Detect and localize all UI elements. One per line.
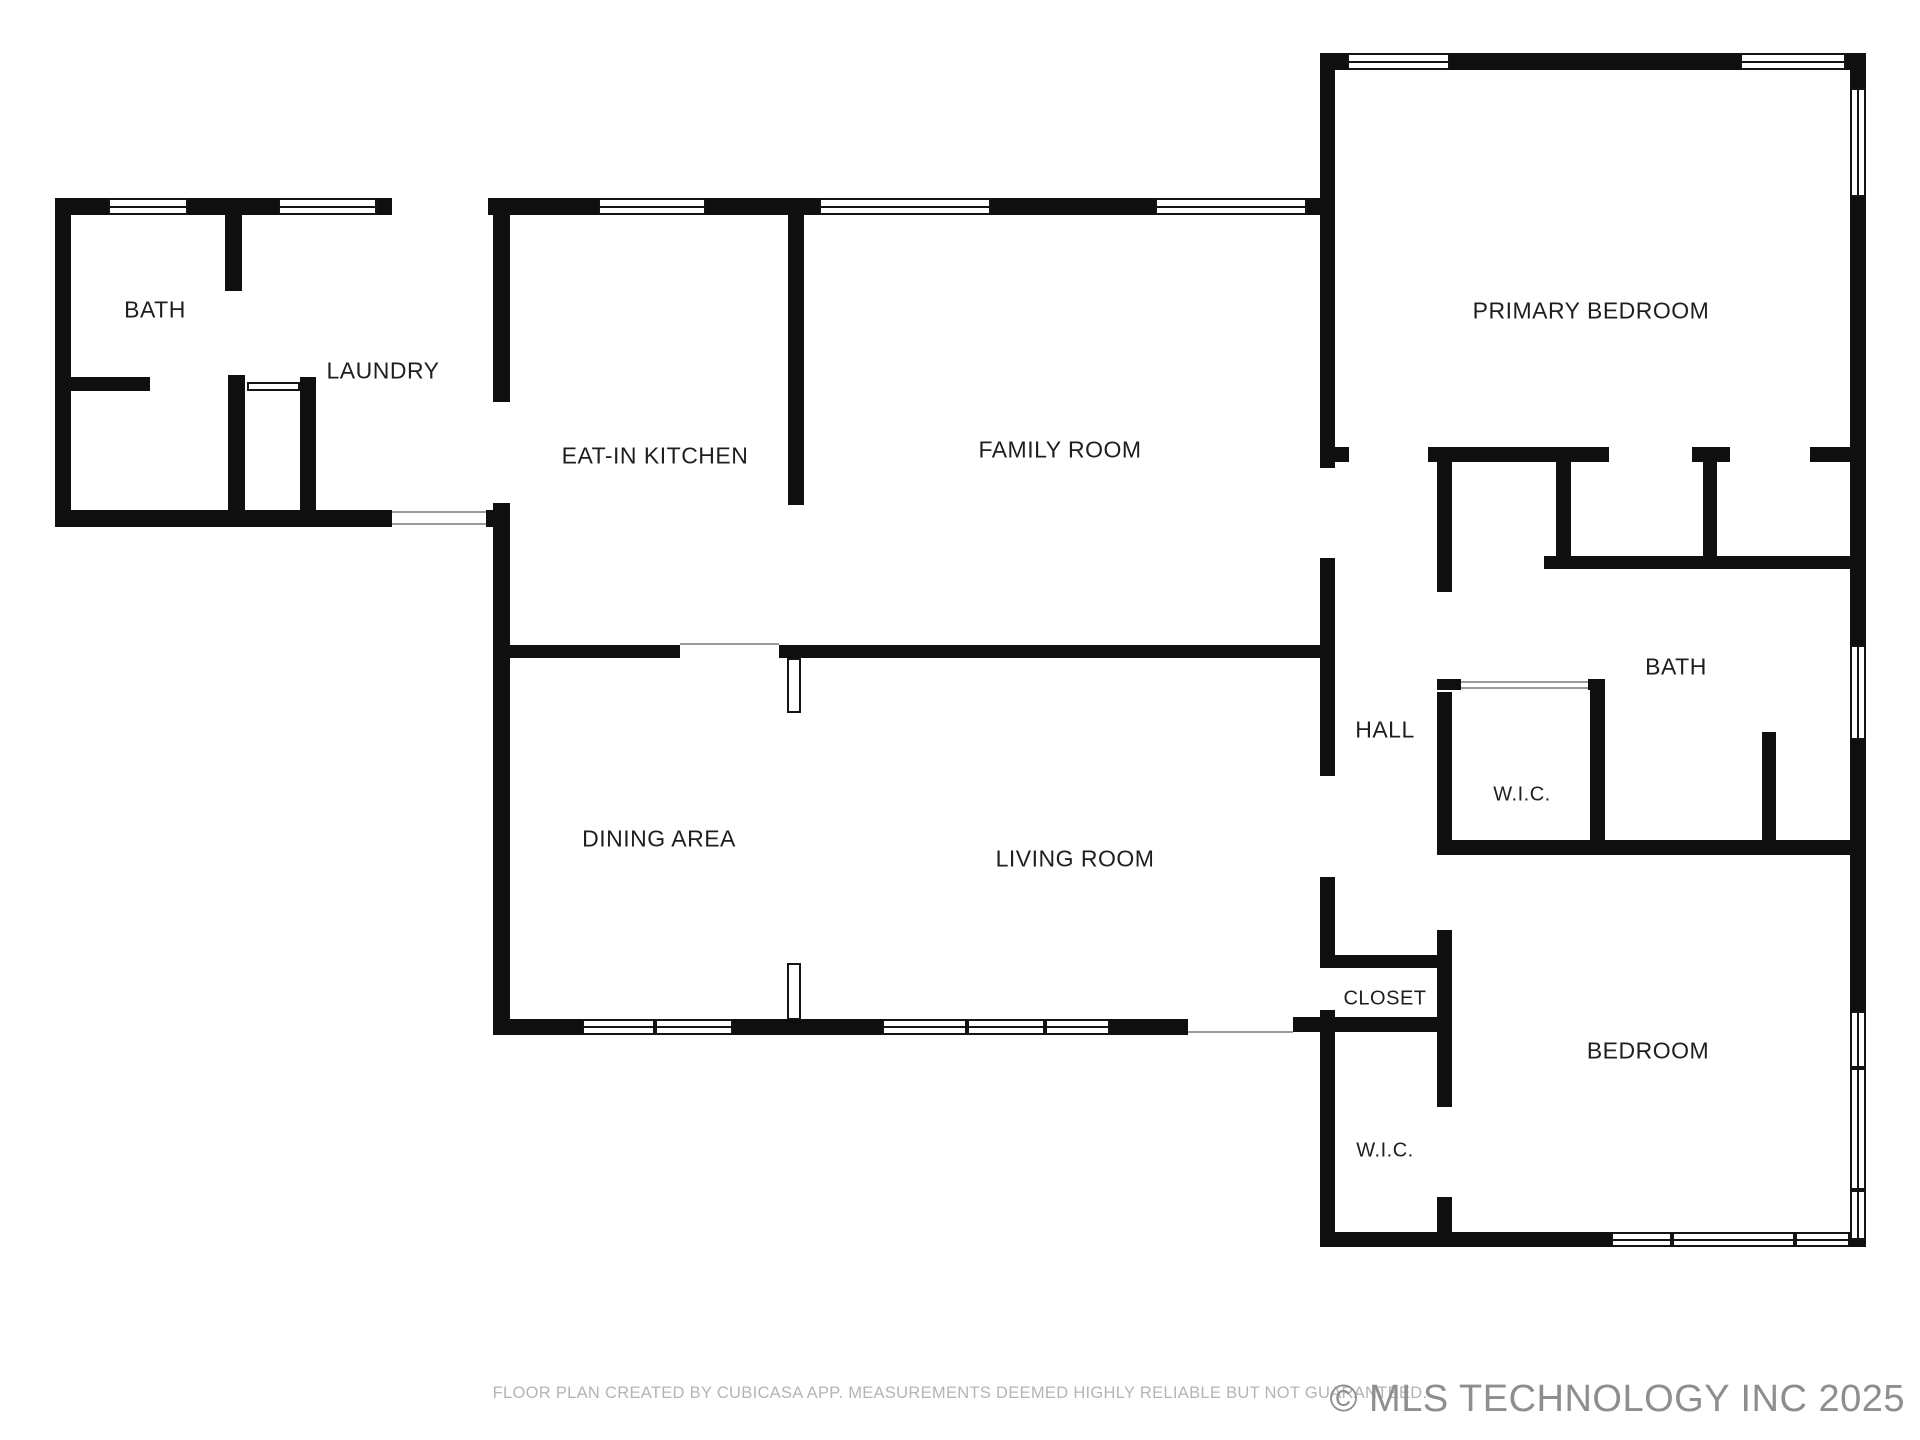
door-leaf — [247, 382, 300, 391]
window — [1155, 198, 1307, 215]
room-label-eat-in-kitchen: EAT-IN KITCHEN — [562, 443, 749, 470]
wall-segment — [1588, 679, 1605, 690]
window — [882, 1019, 967, 1035]
room-label-closet: CLOSET — [1343, 988, 1426, 1011]
wall-segment — [991, 198, 1155, 215]
wall-segment — [1428, 447, 1609, 462]
wall-segment — [1437, 930, 1452, 1107]
window — [1850, 1011, 1866, 1068]
door-leaf — [787, 658, 801, 713]
room-label-laundry: LAUNDRY — [327, 358, 440, 385]
window — [1611, 1232, 1672, 1247]
wall-segment — [505, 645, 680, 658]
wall-segment — [1850, 197, 1866, 645]
wall-segment — [779, 645, 1322, 658]
floor-plan: BATH LAUNDRY EAT-IN KITCHEN FAMILY ROOM … — [0, 0, 1920, 1440]
wall-segment — [788, 198, 804, 505]
room-label-wic-2: W.I.C. — [1356, 1140, 1413, 1163]
room-label-wic-1: W.I.C. — [1493, 784, 1550, 807]
window — [1347, 53, 1450, 70]
wall-segment — [1437, 1197, 1452, 1247]
wall-segment — [300, 377, 316, 510]
wall-segment — [706, 198, 819, 215]
copyright-text: © MLS TECHNOLOGY INC 2025 — [1329, 1378, 1905, 1421]
wall-segment — [1692, 447, 1730, 462]
opening-line — [392, 511, 486, 513]
window — [582, 1019, 655, 1035]
wall-segment — [1333, 447, 1349, 462]
wall-segment — [1320, 1232, 1611, 1247]
wall-segment — [1320, 877, 1335, 968]
wall-segment — [1762, 732, 1776, 842]
wall-segment — [55, 198, 108, 215]
wall-segment — [55, 198, 71, 527]
window — [1850, 88, 1866, 197]
wall-segment — [1293, 1017, 1437, 1032]
wall-segment — [733, 1019, 882, 1035]
wall-segment — [55, 510, 392, 527]
room-label-dining-area: DINING AREA — [582, 826, 736, 853]
room-label-family-room: FAMILY ROOM — [978, 437, 1141, 464]
room-label-hall: HALL — [1355, 717, 1415, 744]
wall-segment — [493, 503, 510, 1035]
room-label-primary-bedroom: PRIMARY BEDROOM — [1473, 298, 1710, 325]
wall-segment — [1850, 740, 1866, 1011]
wall-segment — [486, 510, 510, 527]
opening-line — [1461, 681, 1588, 683]
room-label-bath-2: BATH — [1645, 654, 1707, 681]
wall-segment — [68, 377, 150, 391]
window — [967, 1019, 1045, 1035]
opening-line — [1461, 687, 1588, 689]
wall-segment — [1846, 53, 1866, 70]
window — [1045, 1019, 1110, 1035]
wall-segment — [1437, 692, 1452, 840]
wall-segment — [1450, 53, 1740, 70]
wall-segment — [1556, 462, 1571, 569]
wall-segment — [493, 215, 510, 402]
wall-segment — [1590, 679, 1605, 855]
room-label-bath-1: BATH — [124, 297, 186, 324]
door-leaf — [787, 963, 801, 1020]
wall-segment — [1703, 462, 1717, 569]
window — [819, 198, 991, 215]
window — [1672, 1232, 1795, 1247]
wall-segment — [377, 198, 392, 215]
room-label-bedroom: BEDROOM — [1587, 1038, 1709, 1065]
opening-line — [680, 643, 779, 645]
wall-segment — [228, 375, 245, 510]
room-label-living-room: LIVING ROOM — [996, 846, 1155, 873]
window — [1740, 53, 1846, 70]
wall-segment — [1437, 447, 1452, 592]
window — [108, 198, 188, 215]
opening-line — [392, 523, 486, 525]
window — [1850, 1068, 1866, 1190]
window — [1850, 645, 1866, 740]
wall-segment — [225, 215, 242, 291]
wall-segment — [1320, 1010, 1335, 1247]
opening-line — [1188, 1031, 1293, 1033]
wall-segment — [1307, 198, 1335, 215]
wall-segment — [1335, 955, 1437, 968]
wall-segment — [188, 198, 278, 215]
window — [598, 198, 706, 215]
wall-segment — [488, 198, 598, 215]
wall-segment — [1110, 1019, 1188, 1035]
window — [1795, 1232, 1850, 1247]
wall-segment — [1437, 679, 1461, 690]
window — [278, 198, 377, 215]
wall-segment — [1320, 558, 1335, 776]
window — [655, 1019, 733, 1035]
wall-segment — [1320, 53, 1335, 468]
wall-segment — [1437, 840, 1866, 855]
window — [1850, 1190, 1866, 1240]
